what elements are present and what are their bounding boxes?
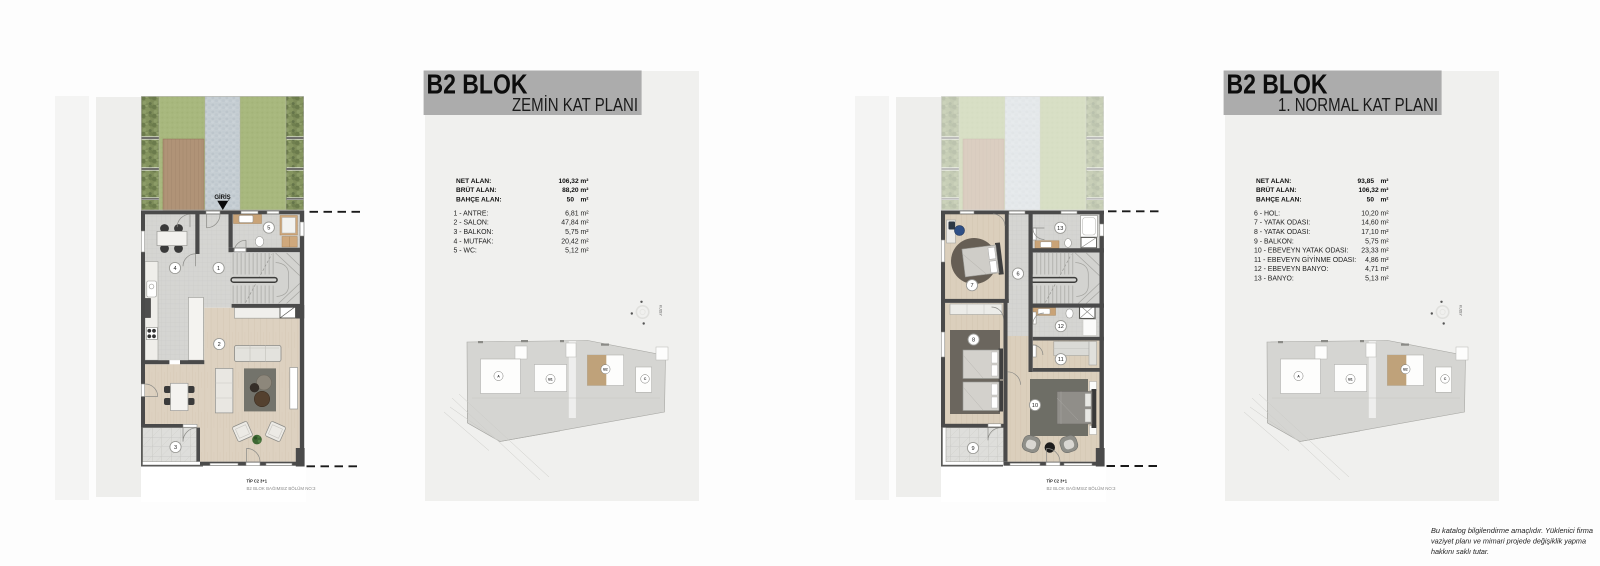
svg-text:NET ALAN:: NET ALAN:: [1256, 178, 1291, 185]
svg-text:7: 7: [970, 283, 973, 289]
svg-text:BRÜT ALAN:: BRÜT ALAN:: [1256, 185, 1296, 194]
svg-text:23,33 m²: 23,33 m²: [1361, 248, 1389, 255]
svg-text:5,75 m²: 5,75 m²: [1365, 238, 1389, 245]
svg-text:10 - EBEVEYN YATAK ODASI:: 10 - EBEVEYN YATAK ODASI:: [1254, 248, 1349, 255]
svg-text:m²: m²: [580, 196, 589, 203]
svg-text:vaziyet planı ve mimari projed: vaziyet planı ve mimari projede değişikl…: [1431, 537, 1586, 546]
svg-text:TİP C2 3+1: TİP C2 3+1: [1047, 478, 1068, 484]
svg-text:13: 13: [1057, 226, 1063, 232]
svg-text:12 - EBEVEYN BANYO:: 12 - EBEVEYN BANYO:: [1254, 266, 1328, 273]
svg-text:8: 8: [972, 338, 975, 344]
svg-text:Bu katalog bilgilendirme amaçl: Bu katalog bilgilendirme amaçlıdır. Yükl…: [1431, 526, 1593, 535]
svg-text:1. NORMAL KAT PLANI: 1. NORMAL KAT PLANI: [1278, 94, 1438, 115]
svg-text:BAHÇE ALAN:: BAHÇE ALAN:: [456, 196, 502, 203]
svg-text:17,10 m²: 17,10 m²: [1361, 229, 1389, 236]
svg-text:12: 12: [1058, 324, 1064, 330]
svg-text:8 - YATAK ODASI:: 8 - YATAK ODASI:: [1254, 229, 1310, 236]
svg-text:47,84 m²: 47,84 m²: [561, 220, 589, 227]
svg-text:GİRİŞ: GİRİŞ: [214, 194, 230, 201]
svg-text:5,13 m²: 5,13 m²: [1365, 276, 1389, 283]
svg-text:BAHÇE ALAN:: BAHÇE ALAN:: [1256, 196, 1302, 203]
svg-text:5: 5: [267, 226, 270, 232]
svg-text:TİP C2 3+1: TİP C2 3+1: [247, 478, 268, 484]
svg-text:106,32 m²: 106,32 m²: [1358, 187, 1389, 194]
svg-text:5,75 m²: 5,75 m²: [565, 229, 589, 236]
svg-text:13 - BANYO:: 13 - BANYO:: [1254, 276, 1294, 283]
svg-text:m²: m²: [1380, 178, 1389, 185]
svg-text:2: 2: [218, 342, 221, 348]
svg-text:11 - EBEVEYN GİYİNME ODASI:: 11 - EBEVEYN GİYİNME ODASI:: [1254, 255, 1356, 264]
svg-text:3: 3: [174, 445, 177, 451]
svg-text:2 - SALON:: 2 - SALON:: [454, 220, 489, 227]
svg-text:20,42 m²: 20,42 m²: [561, 238, 589, 245]
svg-text:5 - WC:: 5 - WC:: [454, 248, 477, 255]
svg-text:11: 11: [1058, 357, 1064, 363]
svg-text:6 - HOL:: 6 - HOL:: [1254, 210, 1280, 217]
svg-text:14,60 m²: 14,60 m²: [1361, 220, 1389, 227]
svg-text:3 - BALKON:: 3 - BALKON:: [454, 229, 494, 236]
svg-text:9: 9: [971, 446, 974, 452]
svg-text:hakkını saklı tutar.: hakkını saklı tutar.: [1431, 547, 1489, 556]
svg-text:7 - YATAK ODASI:: 7 - YATAK ODASI:: [1254, 220, 1310, 227]
svg-text:50: 50: [567, 196, 575, 203]
svg-text:10: 10: [1032, 403, 1038, 409]
svg-text:1: 1: [217, 266, 220, 272]
svg-text:4 - MUTFAK:: 4 - MUTFAK:: [454, 238, 494, 245]
svg-text:NET ALAN:: NET ALAN:: [456, 178, 491, 185]
svg-text:106,32 m²: 106,32 m²: [558, 178, 589, 185]
svg-text:10,20 m²: 10,20 m²: [1361, 210, 1389, 217]
svg-text:m²: m²: [1380, 196, 1389, 203]
svg-text:ZEMİN KAT PLANI: ZEMİN KAT PLANI: [512, 94, 638, 115]
svg-text:9 - BALKON:: 9 - BALKON:: [1254, 238, 1294, 245]
svg-text:4,86 m²: 4,86 m²: [1365, 257, 1389, 264]
svg-text:4: 4: [173, 266, 176, 272]
svg-text:5,12 m²: 5,12 m²: [565, 248, 589, 255]
svg-text:88,20 m²: 88,20 m²: [562, 187, 589, 194]
svg-text:93,85: 93,85: [1357, 178, 1374, 185]
svg-text:B2 BLOK BAĞIMSIZ BÖLÜM NO:3: B2 BLOK BAĞIMSIZ BÖLÜM NO:3: [1047, 486, 1117, 491]
svg-text:1 - ANTRE:: 1 - ANTRE:: [454, 210, 489, 217]
svg-text:6,81 m²: 6,81 m²: [565, 210, 589, 217]
svg-text:6: 6: [1016, 272, 1019, 278]
svg-text:B2 BLOK BAĞIMSIZ BÖLÜM NO:3: B2 BLOK BAĞIMSIZ BÖLÜM NO:3: [247, 486, 317, 491]
svg-text:4,71 m²: 4,71 m²: [1365, 266, 1389, 273]
svg-text:BRÜT ALAN:: BRÜT ALAN:: [456, 185, 496, 194]
svg-text:50: 50: [1367, 196, 1375, 203]
